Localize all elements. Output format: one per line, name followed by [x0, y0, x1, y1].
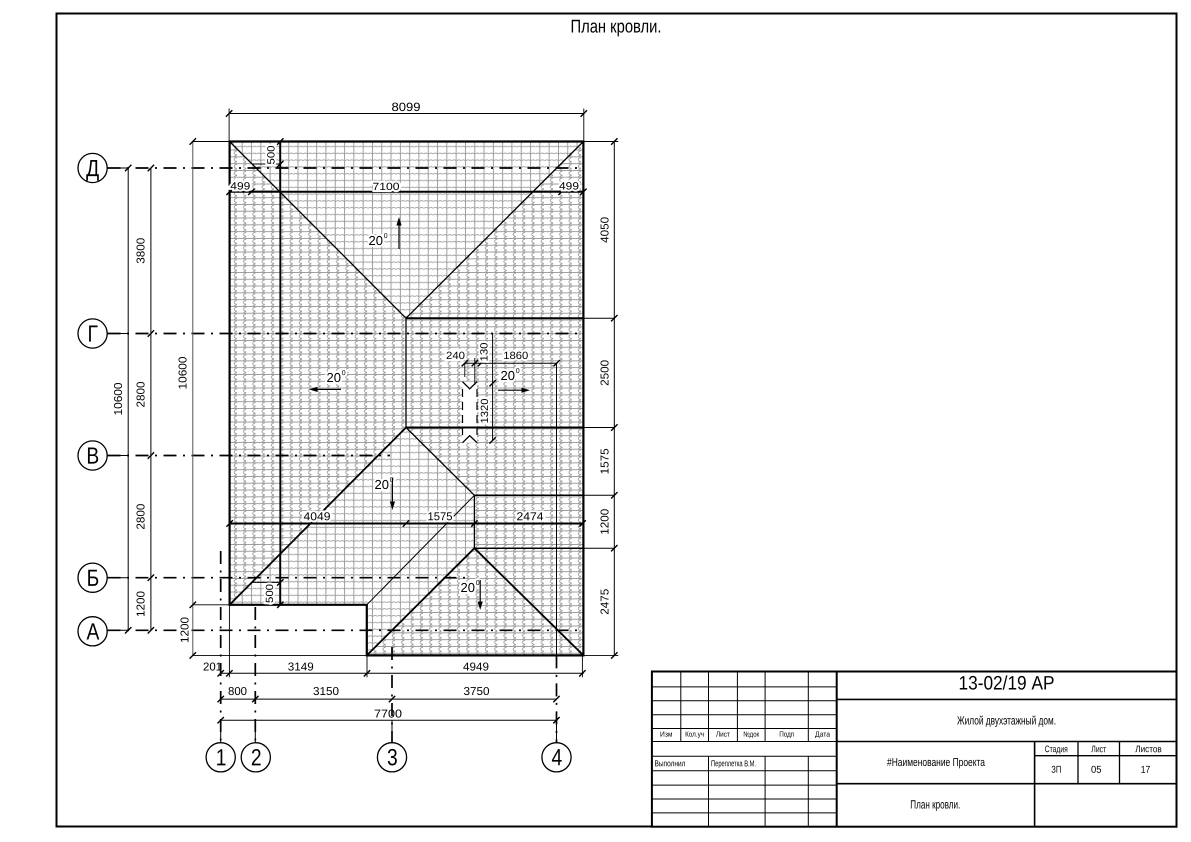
svg-text:Стадия: Стадия	[1045, 744, 1068, 755]
svg-text:0: 0	[342, 370, 346, 377]
svg-text:Д: Д	[86, 155, 99, 181]
svg-text:1575: 1575	[427, 511, 452, 523]
svg-text:2500: 2500	[600, 360, 612, 386]
svg-text:4049: 4049	[303, 511, 330, 523]
svg-text:20: 20	[375, 477, 389, 492]
svg-text:Жилой двухэтажный дом.: Жилой двухэтажный дом.	[957, 713, 1056, 727]
svg-text:2474: 2474	[516, 511, 544, 523]
svg-text:Переплетка В.М.: Переплетка В.М.	[711, 758, 756, 768]
svg-text:Лист: Лист	[1091, 744, 1106, 755]
svg-text:130: 130	[479, 342, 491, 361]
svg-text:20: 20	[327, 370, 341, 385]
svg-text:500: 500	[264, 584, 276, 603]
svg-text:В: В	[86, 443, 99, 469]
svg-text:Дата: Дата	[815, 730, 831, 739]
svg-text:20: 20	[501, 368, 515, 383]
svg-text:План кровли.: План кровли.	[910, 797, 960, 811]
svg-text:0: 0	[384, 233, 388, 240]
svg-text:8099: 8099	[391, 100, 420, 114]
svg-text:7700: 7700	[374, 708, 402, 720]
svg-text:2: 2	[251, 744, 262, 770]
svg-text:20: 20	[461, 580, 475, 595]
svg-text:Листов: Листов	[1135, 744, 1162, 755]
svg-text:Кол.уч: Кол.уч	[685, 730, 704, 739]
svg-text:0: 0	[476, 580, 480, 587]
svg-text:500: 500	[266, 145, 278, 164]
svg-text:1200: 1200	[136, 591, 148, 617]
svg-text:17: 17	[1141, 765, 1151, 776]
svg-text:201: 201	[203, 661, 222, 673]
svg-text:4: 4	[552, 744, 563, 770]
svg-text:20: 20	[369, 233, 383, 248]
svg-text:05: 05	[1091, 765, 1102, 776]
svg-text:1575: 1575	[600, 448, 612, 474]
svg-text:Г: Г	[88, 321, 99, 347]
svg-text:№док: №док	[743, 730, 760, 739]
svg-text:Лист: Лист	[716, 730, 730, 739]
svg-text:1200: 1200	[600, 509, 612, 535]
svg-text:ЗП: ЗП	[1051, 765, 1061, 776]
svg-text:#Наименование Проекта: #Наименование Проекта	[887, 757, 985, 769]
svg-text:10600: 10600	[178, 357, 190, 390]
svg-text:2800: 2800	[136, 504, 148, 530]
svg-text:Подп: Подп	[779, 730, 794, 739]
svg-text:4050: 4050	[600, 217, 612, 243]
svg-text:Изм: Изм	[660, 730, 673, 739]
svg-text:Выполнил: Выполнил	[654, 758, 685, 768]
svg-text:3750: 3750	[463, 686, 489, 698]
svg-text:499: 499	[230, 180, 250, 192]
svg-text:4949: 4949	[463, 661, 489, 673]
svg-text:1860: 1860	[503, 350, 528, 362]
svg-text:0: 0	[516, 368, 520, 375]
svg-text:3149: 3149	[288, 661, 314, 673]
svg-text:800: 800	[228, 686, 247, 698]
svg-text:13-02/19 АР: 13-02/19 АР	[958, 672, 1054, 694]
svg-text:Б: Б	[87, 565, 100, 591]
svg-text:240: 240	[446, 350, 465, 362]
svg-text:1320: 1320	[479, 398, 491, 423]
svg-text:1200: 1200	[180, 617, 192, 643]
svg-text:10600: 10600	[113, 383, 125, 416]
svg-text:3: 3	[387, 744, 398, 770]
svg-text:План кровли.: План кровли.	[570, 15, 661, 36]
svg-text:7100: 7100	[372, 181, 399, 193]
svg-text:А: А	[86, 618, 99, 644]
svg-text:2800: 2800	[136, 382, 148, 408]
svg-text:3800: 3800	[136, 238, 148, 264]
svg-text:1: 1	[216, 744, 227, 770]
svg-text:2475: 2475	[600, 589, 612, 615]
svg-text:3150: 3150	[313, 686, 339, 698]
svg-text:499: 499	[559, 180, 579, 192]
